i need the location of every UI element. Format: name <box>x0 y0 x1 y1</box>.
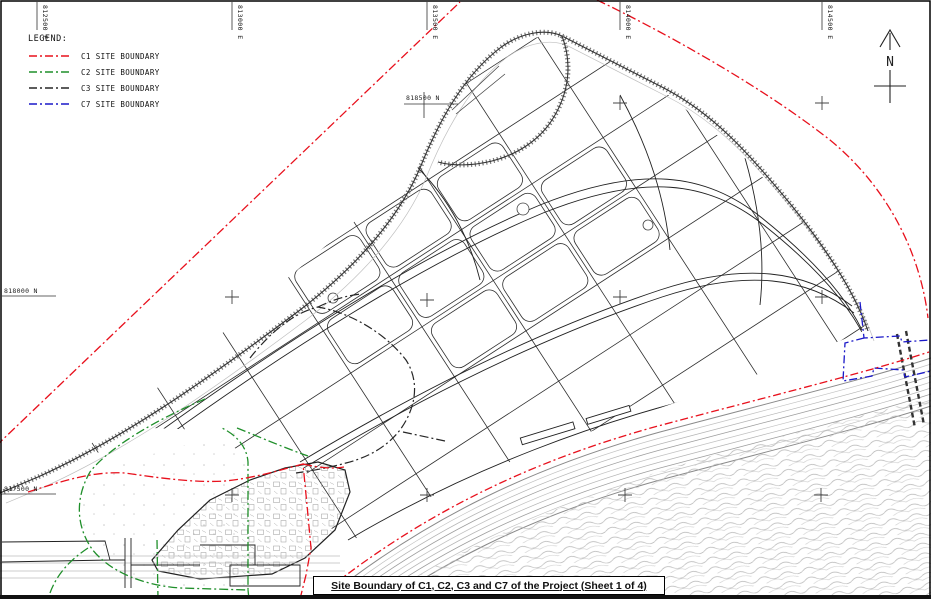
c7-line-sample-icon <box>28 100 72 108</box>
easting-label: 813500 E <box>431 5 439 40</box>
c3-line-sample-icon <box>28 84 72 92</box>
legend-item-label: C1 SITE BOUNDARY <box>81 52 160 61</box>
legend-item-c7: C7 SITE BOUNDARY <box>28 96 160 112</box>
legend-item-c2: C2 SITE BOUNDARY <box>28 64 160 80</box>
northing-label: 818000 N <box>4 287 38 295</box>
sheet-title: Site Boundary of C1, C2, C3 and C7 of th… <box>331 580 647 592</box>
legend-item-label: C2 SITE BOUNDARY <box>81 68 160 77</box>
easting-label: 813000 E <box>236 5 244 40</box>
legend-item-label: C3 SITE BOUNDARY <box>81 84 160 93</box>
north-arrow-label: N <box>886 55 894 70</box>
easting-label: 814000 E <box>624 5 632 40</box>
legend-item-label: C7 SITE BOUNDARY <box>81 100 160 109</box>
easting-label: 814500 E <box>826 5 834 40</box>
drawing-sheet: N 812500 E 813000 E 813500 E 814000 E 81… <box>0 0 931 599</box>
sheet-title-box: Site Boundary of C1, C2, C3 and C7 of th… <box>313 576 665 595</box>
c1-line-sample-icon <box>28 52 72 60</box>
northing-label: 817500 N <box>4 485 38 493</box>
legend-item-c1: C1 SITE BOUNDARY <box>28 48 160 64</box>
legend: LEGEND: C1 SITE BOUNDARY C2 SITE BOUNDAR… <box>28 34 160 112</box>
legend-item-c3: C3 SITE BOUNDARY <box>28 80 160 96</box>
legend-heading: LEGEND: <box>28 34 160 44</box>
c2-line-sample-icon <box>28 68 72 76</box>
bottom-border-bar <box>0 595 931 599</box>
northing-label-inner: 818500 N <box>406 94 440 102</box>
